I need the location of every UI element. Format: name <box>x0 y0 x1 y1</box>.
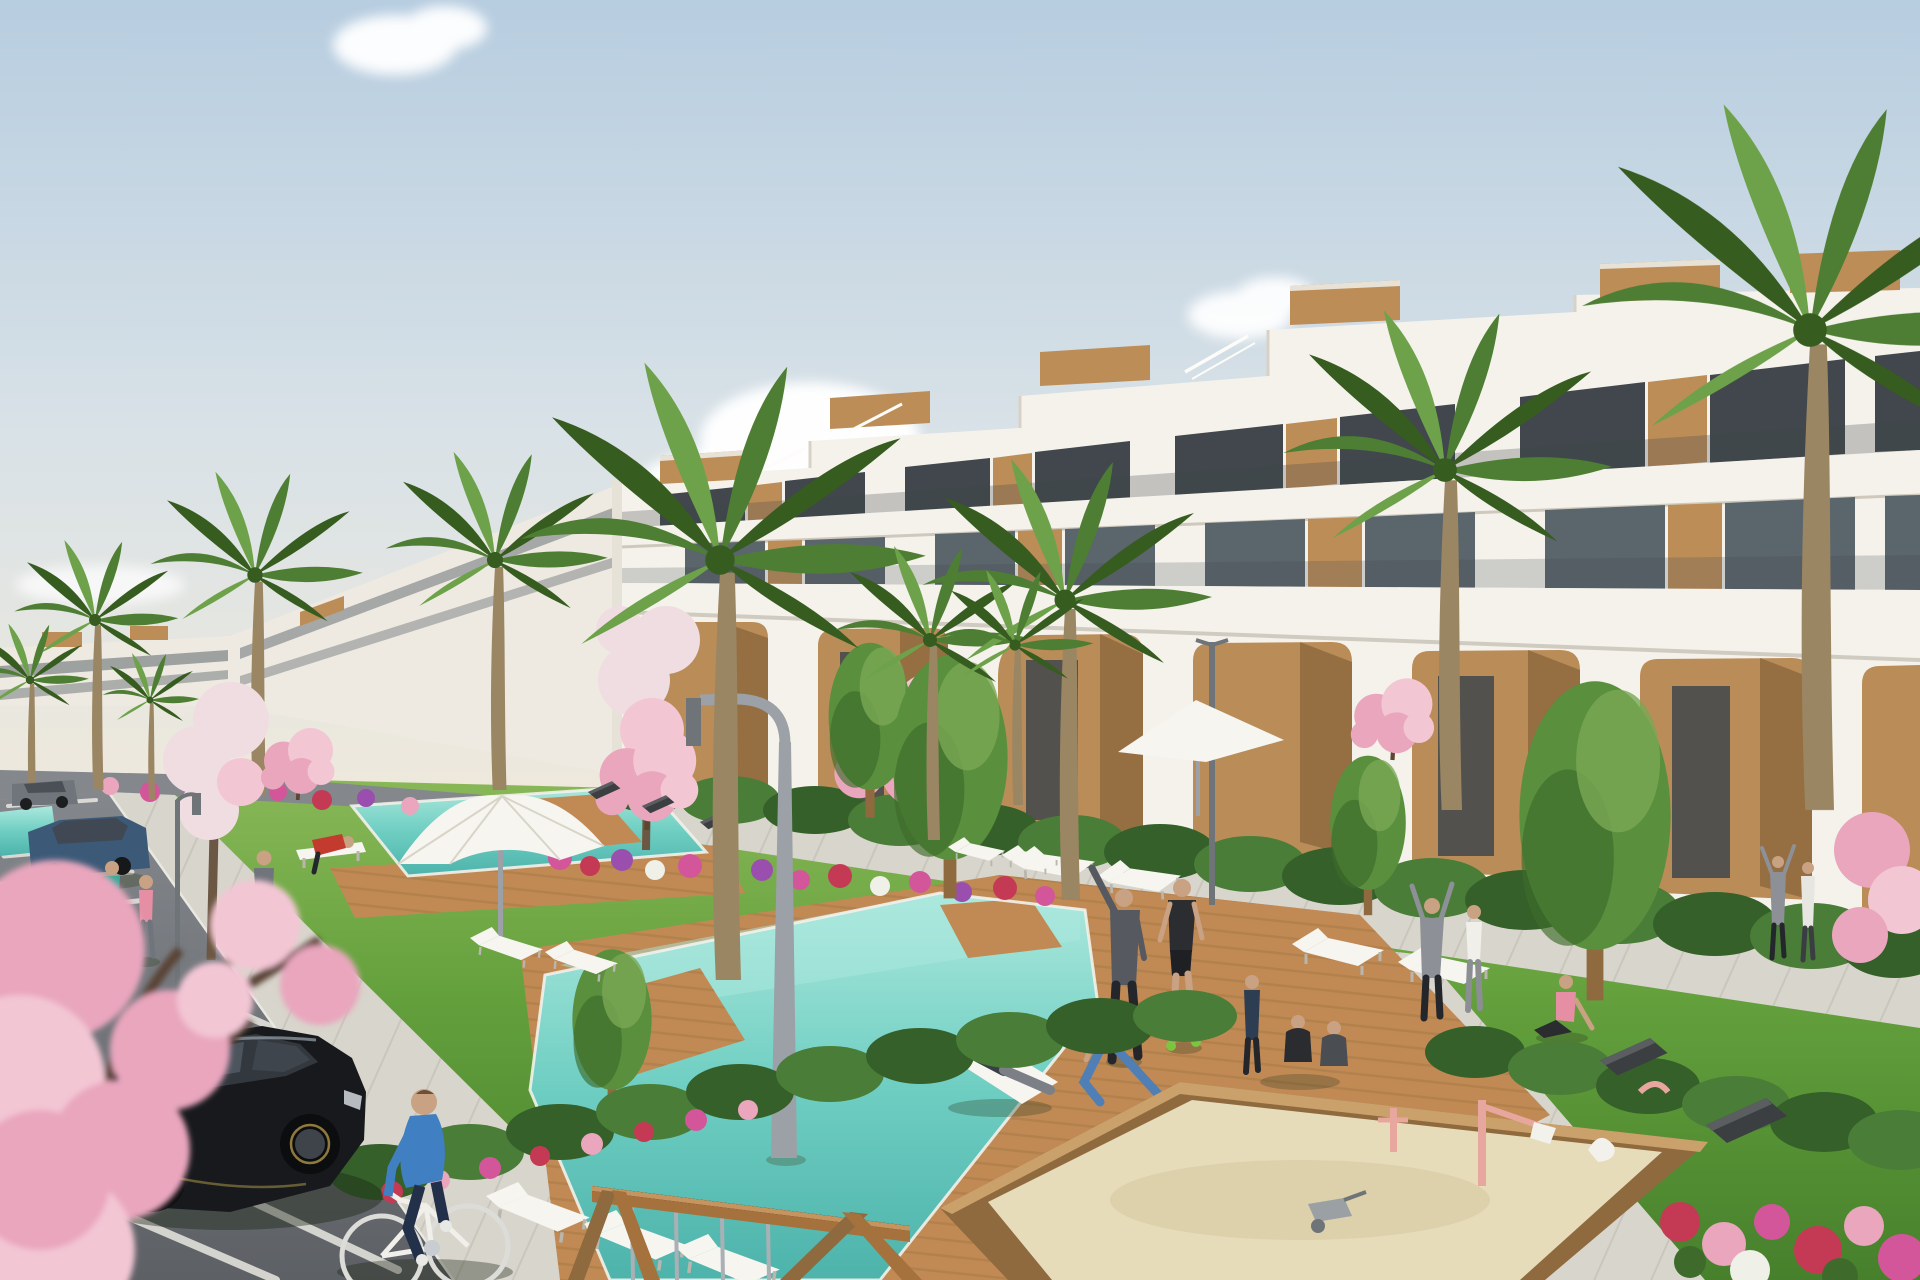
scene <box>0 0 1920 1280</box>
architectural-render <box>0 0 1920 1280</box>
